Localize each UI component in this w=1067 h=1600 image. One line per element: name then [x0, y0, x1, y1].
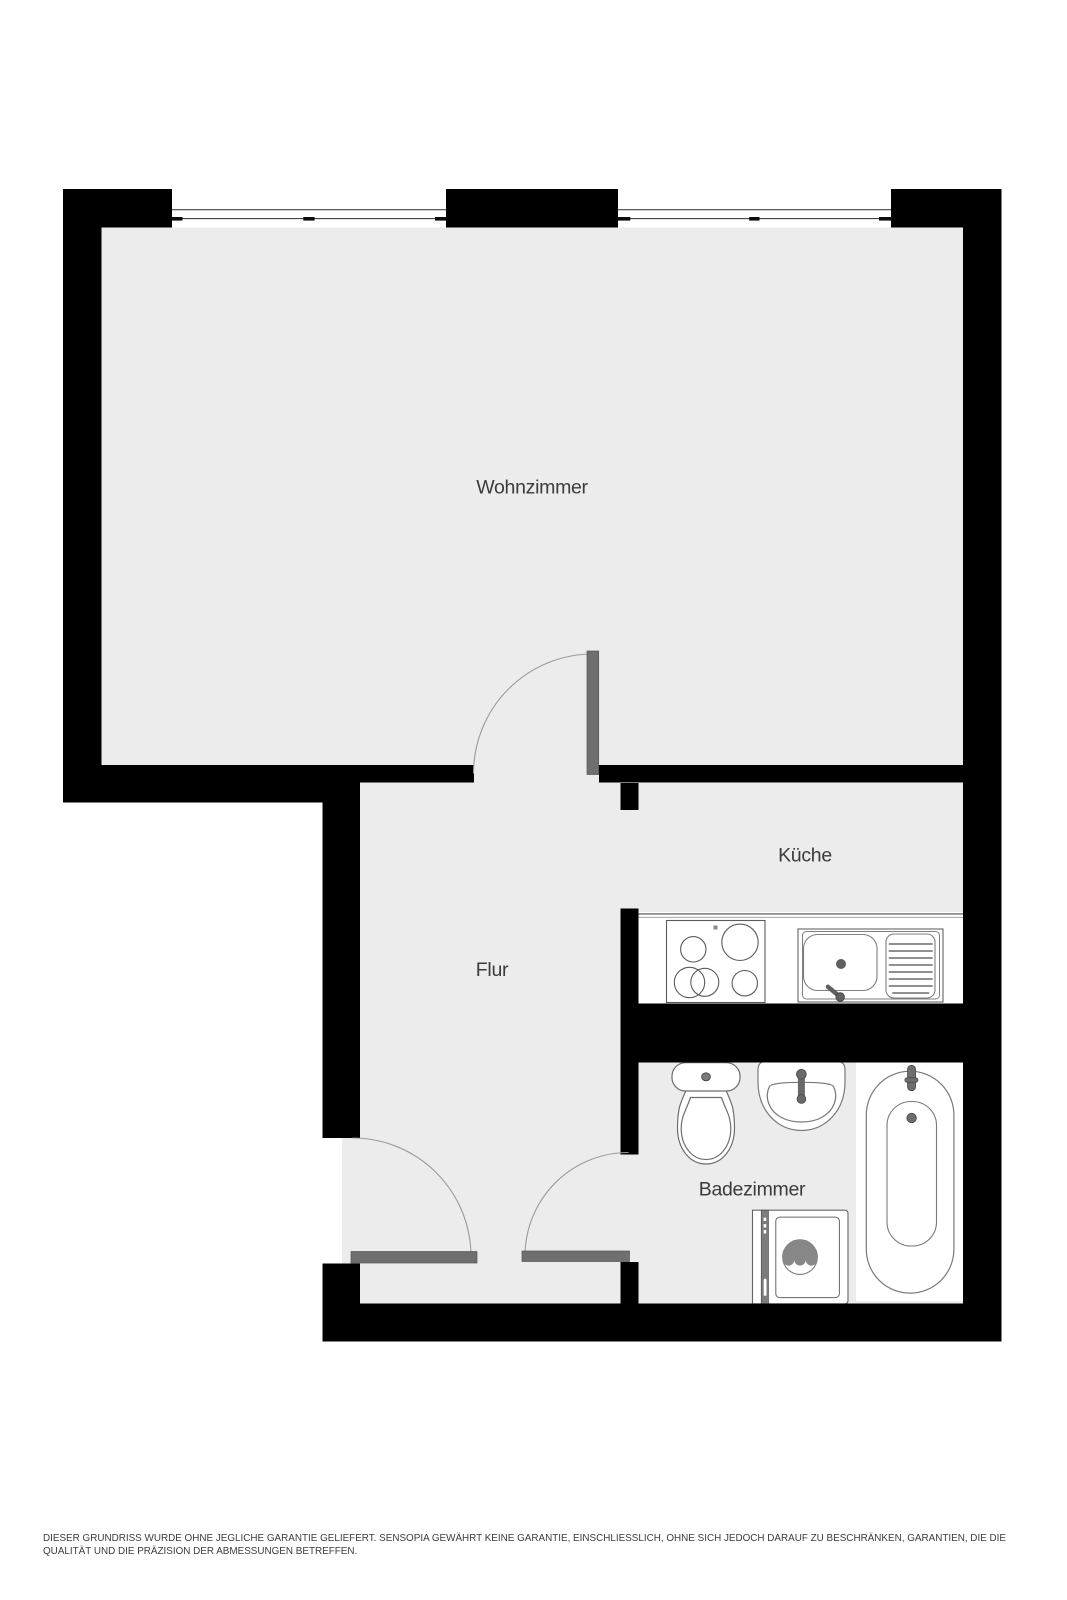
svg-text:Flur: Flur: [476, 959, 509, 981]
svg-text:QUALITÄT UND DIE PRÄZISION DER: QUALITÄT UND DIE PRÄZISION DER ABMESSUNG…: [43, 1546, 357, 1557]
svg-text:Wohnzimmer: Wohnzimmer: [476, 476, 588, 498]
svg-text:Badezimmer: Badezimmer: [699, 1179, 806, 1201]
svg-text:Küche: Küche: [778, 844, 832, 866]
svg-text:DIESER GRUNDRISS WURDE OHNE JE: DIESER GRUNDRISS WURDE OHNE JEGLICHE GAR…: [43, 1533, 1006, 1544]
